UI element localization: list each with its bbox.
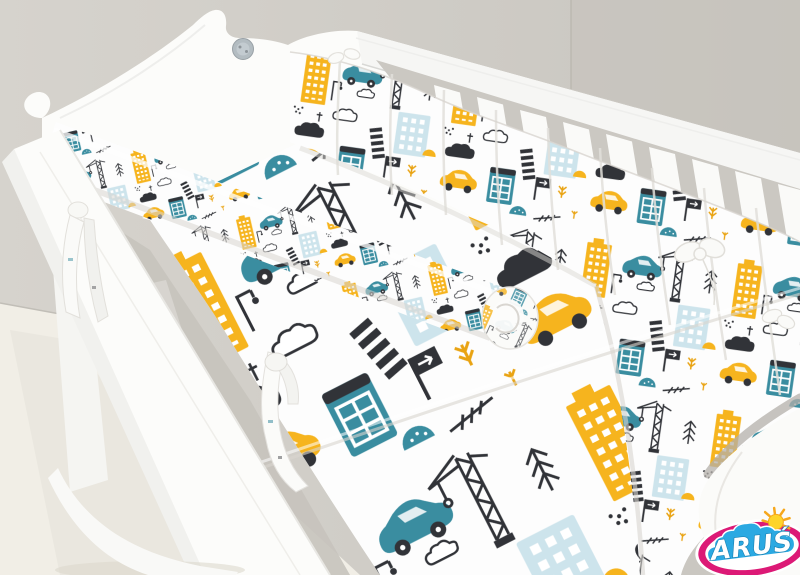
headboard-button: [233, 39, 254, 60]
scene: ARUŚ: [0, 0, 800, 575]
crib-product-photo: ARUŚ: [0, 0, 800, 575]
